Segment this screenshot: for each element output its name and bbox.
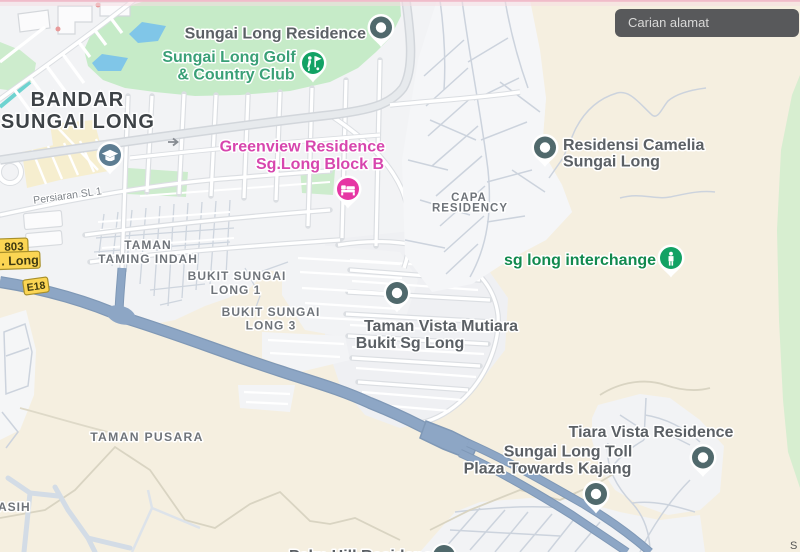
svg-text:SUNGAI LONG: SUNGAI LONG: [1, 111, 155, 133]
svg-text:Sungai Long: Sungai Long: [563, 154, 660, 171]
svg-text:S: S: [790, 540, 797, 552]
svg-text:Sg.Long Block B: Sg.Long Block B: [256, 156, 384, 173]
svg-text:Bukit Sg Long: Bukit Sg Long: [356, 335, 464, 352]
svg-text:Sungai Long Residence: Sungai Long Residence: [185, 26, 366, 43]
svg-text:TAMAN: TAMAN: [124, 238, 171, 252]
svg-text:Plaza Towards Kajang: Plaza Towards Kajang: [464, 461, 632, 478]
svg-text:& Country Club: & Country Club: [177, 67, 295, 84]
svg-text:Tiara Vista Residence: Tiara Vista Residence: [569, 424, 734, 441]
svg-text:Carian alamat: Carian alamat: [628, 15, 709, 30]
svg-text:LONG 1: LONG 1: [211, 283, 262, 297]
svg-text:Taman Vista Mutiara: Taman Vista Mutiara: [364, 318, 518, 335]
svg-text:Greenview Residence: Greenview Residence: [220, 139, 386, 156]
svg-text:BUKIT SUNGAI: BUKIT SUNGAI: [188, 269, 287, 283]
svg-text:TAMING INDAH: TAMING INDAH: [98, 252, 198, 266]
svg-text:RESIDENCY: RESIDENCY: [432, 203, 508, 215]
svg-text:LONG 3: LONG 3: [246, 319, 297, 333]
svg-text:BANDAR: BANDAR: [31, 89, 125, 111]
svg-text:TAMAN PUSARA: TAMAN PUSARA: [90, 430, 204, 444]
svg-text:ASIH: ASIH: [0, 500, 31, 514]
svg-text:Residensi Camelia: Residensi Camelia: [563, 137, 705, 154]
svg-text:Sungai Long Toll: Sungai Long Toll: [504, 444, 633, 461]
svg-text:Sungai Long Golf: Sungai Long Golf: [162, 49, 296, 66]
svg-text:sg long interchange: sg long interchange: [504, 252, 656, 269]
svg-text:BUKIT SUNGAI: BUKIT SUNGAI: [222, 305, 321, 319]
svg-text:Palm Hill Residence: Palm Hill Residence: [289, 548, 441, 552]
svg-text:. Long: . Long: [1, 253, 39, 268]
